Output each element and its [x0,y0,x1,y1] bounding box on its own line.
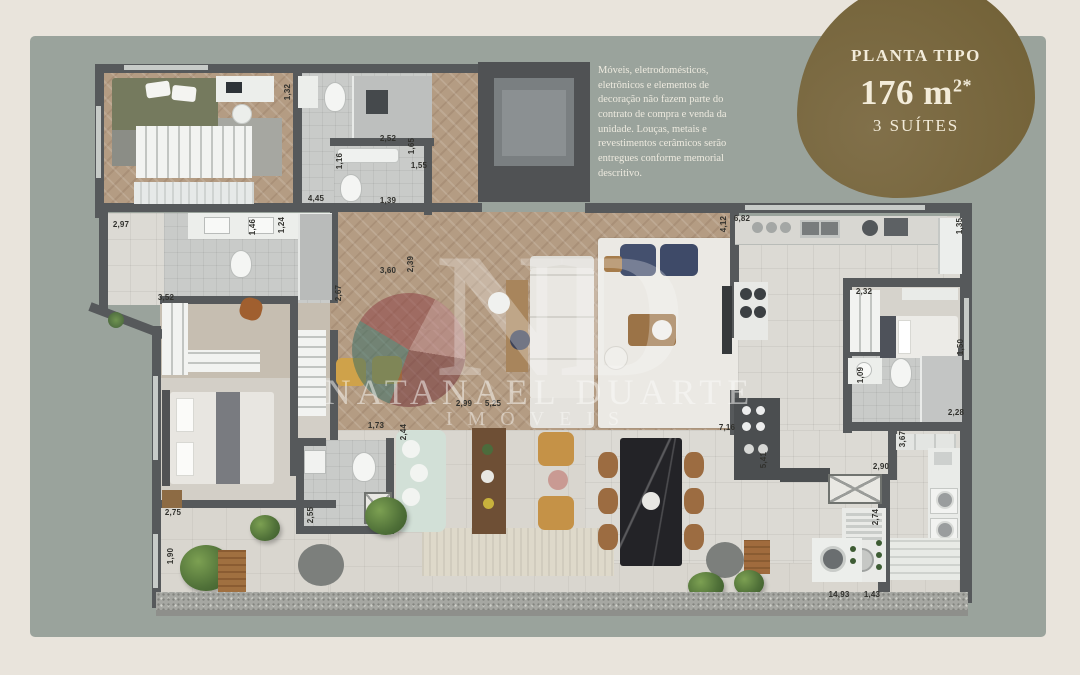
wall [296,438,304,534]
sink [204,217,230,234]
shower-stall [920,356,962,422]
burner [766,222,777,233]
window [153,376,158,460]
shower-fixture [366,90,388,114]
armchair-mustard [538,496,574,530]
laundry-sink [934,452,952,465]
outdoor-bench [890,538,960,580]
plant [365,497,407,535]
armchair [488,292,510,314]
pillow [402,488,420,506]
wardrobe [298,330,326,416]
side-table [548,470,568,490]
tv-console [722,286,732,354]
valve [876,540,882,546]
wall [99,212,108,312]
burner [740,288,752,300]
wall [843,422,963,431]
pillow [402,440,420,458]
grill-plate [820,546,846,572]
sofa-chaise [530,398,594,428]
pillow [410,464,428,482]
wardrobe [162,303,188,375]
vanity-desk [216,76,274,102]
dining-chair [598,452,618,478]
knob [850,558,856,564]
burner [754,288,766,300]
burner [780,222,791,233]
burner [754,306,766,318]
pillow [898,320,911,354]
office-chair [510,330,530,350]
toilet [324,82,346,112]
pillow [176,398,194,432]
badge-area: 176 m2* [860,75,972,110]
armchair-navy [660,244,698,276]
knob [744,444,754,454]
plant-pot [108,312,124,328]
dining-chair [684,488,704,514]
badge-suites: 3 SUÍTES [873,116,959,136]
bathroom-vanity [298,76,318,108]
sink-basin [802,222,819,235]
side-table [604,256,622,272]
wall [330,330,338,440]
wardrobe [188,350,260,372]
floor-hall-upper [432,73,478,212]
dining-chair [684,452,704,478]
badge-title: PLANTA TIPO [851,46,981,66]
knob [756,422,765,431]
decor [483,498,494,509]
shower-stall [298,214,332,300]
sink [248,217,274,234]
terrace-edge [156,610,968,616]
decor [482,444,493,455]
wall [296,438,326,446]
nightstand [162,490,182,508]
knob [850,546,856,552]
bed-throw [880,316,896,358]
floor-foyer [330,212,440,330]
dining-chair [598,524,618,550]
decor [481,470,494,483]
tray [652,320,672,340]
appliance [884,218,908,236]
pouf [604,346,628,370]
armchair-yellow [336,358,366,386]
floor-corridor [104,213,164,305]
wood-table [218,550,246,592]
sink [856,362,872,378]
dining-chair [684,524,704,550]
planta-tipo-image: 2,521,651,551,161,324,451,392,971,461,24… [0,0,1080,675]
burner [740,306,752,318]
console-desk [506,280,528,372]
wardrobe [850,290,880,352]
washer-door [936,491,954,509]
badge-area-value: 176 m [860,73,953,112]
wall [843,278,963,287]
window [745,205,925,210]
sink [304,450,326,474]
dryer-door [936,521,954,539]
sofa [530,268,594,400]
plant [250,515,280,541]
valve [876,564,882,570]
knob [742,422,751,431]
headboard [162,390,170,486]
armchair-yellow [372,356,402,384]
shelf [902,288,958,300]
window [96,106,101,178]
shaft-box [828,474,882,504]
wall [158,500,336,508]
armchair-navy [620,244,656,276]
centerpiece [642,492,660,510]
disclaimer-text: Móveis, eletrodomésticos, eletrônicos e … [598,64,738,182]
knob [742,406,751,415]
island-arm [780,468,830,482]
knob [756,406,765,415]
round-table [298,544,344,586]
sink-basin [821,222,838,235]
pillow [171,85,196,102]
bathtub [337,148,399,163]
wall [330,138,434,146]
wood-chair [744,540,770,574]
ac-grill [846,512,882,540]
window [153,534,158,588]
bed-runner [216,392,240,484]
armchair-mustard [538,432,574,466]
refrigerator [938,218,962,274]
window [124,65,208,70]
shaft-inner-light [502,90,566,156]
window [964,298,969,360]
laptop [226,82,242,93]
badge-area-exponent: 2* [953,75,972,95]
burner [752,222,763,233]
stool [232,104,252,124]
dining-chair [598,488,618,514]
valve [876,552,882,558]
toilet [352,452,376,482]
toilet [340,174,362,202]
shelf-rack [134,182,254,204]
pillow [176,442,194,476]
toilet [890,358,912,388]
terrace-rug [422,528,614,576]
gravel-border [156,592,968,612]
toilet [230,250,252,278]
knob [758,444,768,454]
wardrobe [136,126,252,178]
appliance [862,220,878,236]
wall [424,138,432,215]
